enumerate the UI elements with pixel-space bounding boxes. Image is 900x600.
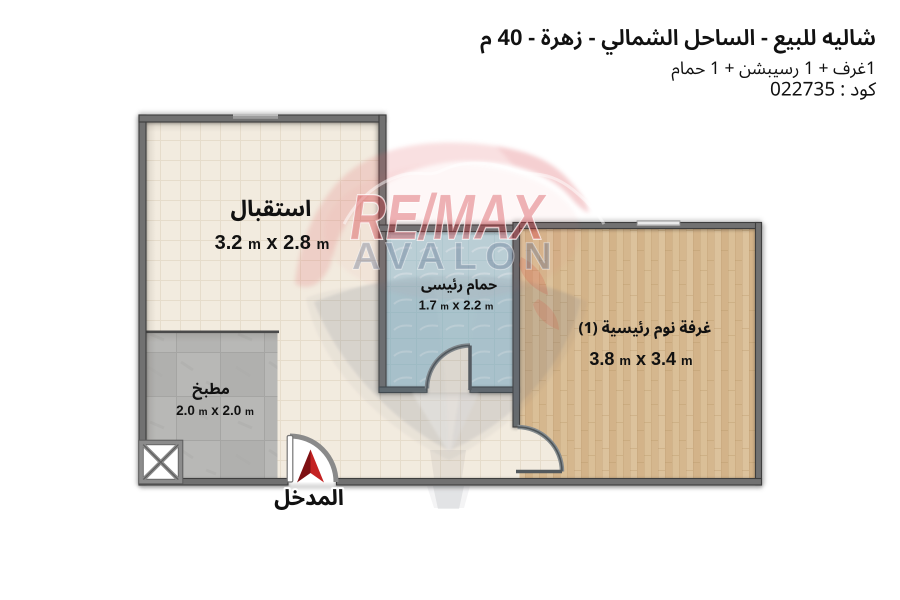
svg-text:3.2 m x 2.8 m: 3.2 m x 2.8 m <box>215 232 330 254</box>
svg-text:AVALON: AVALON <box>352 236 560 278</box>
svg-text:1.7 m x 2.2 m: 1.7 m x 2.2 m <box>419 298 494 313</box>
svg-text:2.0 m x 2.0 m: 2.0 m x 2.0 m <box>176 403 254 418</box>
svg-text:3.8 m x 3.4 m: 3.8 m x 3.4 m <box>589 349 692 369</box>
